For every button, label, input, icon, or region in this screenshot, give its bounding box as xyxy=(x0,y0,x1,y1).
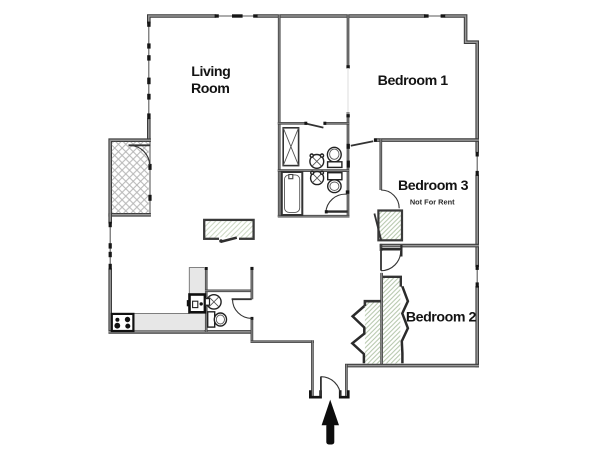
svg-text:Not For Rent: Not For Rent xyxy=(410,197,455,206)
svg-text:Living: Living xyxy=(191,64,230,80)
svg-text:Bedroom 3: Bedroom 3 xyxy=(398,178,469,194)
svg-text:Room: Room xyxy=(191,81,229,97)
svg-text:Bedroom 1: Bedroom 1 xyxy=(378,73,449,89)
svg-text:Bedroom 2: Bedroom 2 xyxy=(406,310,477,326)
